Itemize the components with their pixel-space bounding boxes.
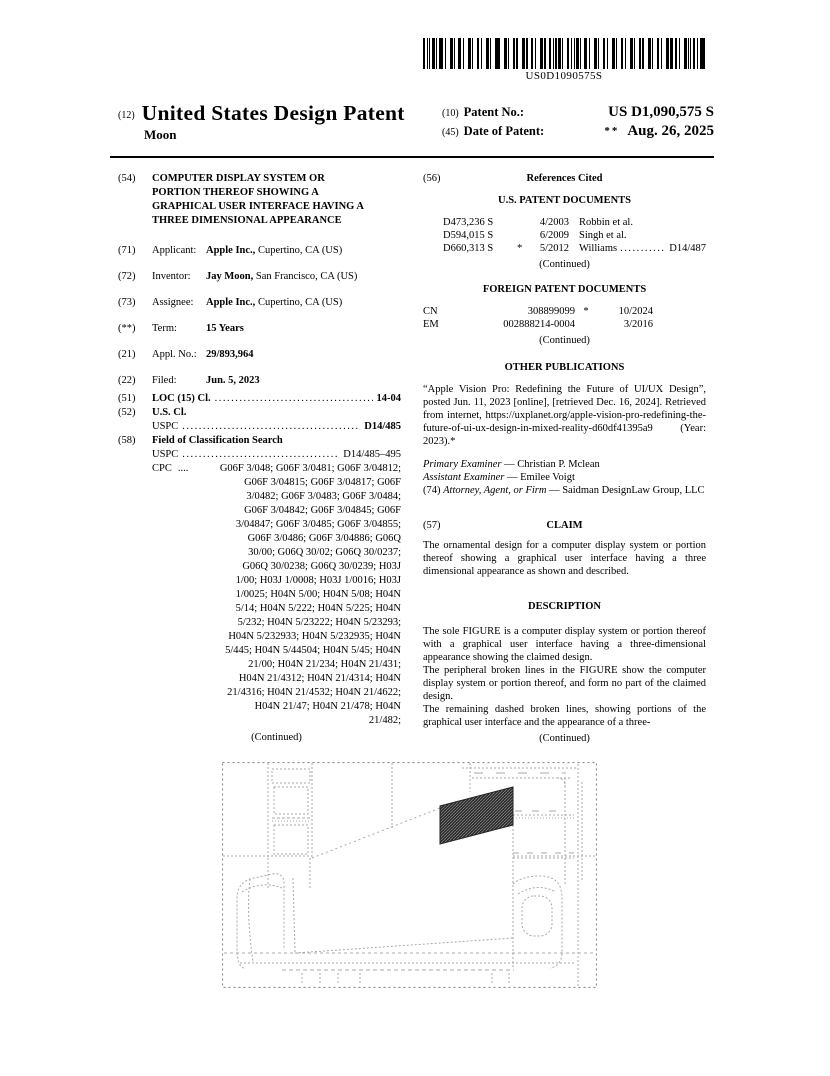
field-label: Appl. No.: — [152, 348, 206, 361]
attorney-line: (74) Attorney, Agent, or Firm — Saidman … — [423, 484, 706, 497]
left-column: (54) COMPUTER DISPLAY SYSTEM OR PORTION … — [118, 172, 401, 745]
cpc-line: 5/232; H04N 5/23222; H04N 5/23293; — [152, 616, 401, 630]
cpc-line: 1/00; H03J 1/0008; H03J 1/0016; H03J — [152, 574, 401, 588]
other-publication-citation: “Apple Vision Pro: Redefining the Future… — [423, 383, 706, 448]
continued-marker: (Continued) — [423, 334, 706, 347]
dot-leader — [630, 229, 703, 242]
cited-inventor: Robbin et al. — [579, 216, 633, 229]
field-number: (51) — [118, 392, 152, 405]
field-number: (22) — [118, 374, 152, 387]
dot-leader: ........................................… — [182, 420, 360, 433]
us-patent-documents-table: D473,236 S 4/2003 Robbin et al. D594,015… — [423, 216, 706, 255]
field-number: (52) — [118, 406, 152, 419]
patent-date: Aug. 26, 2025 — [627, 123, 714, 140]
continued-marker: (Continued) — [152, 731, 401, 745]
dot-leader: ........................................… — [215, 392, 373, 405]
assistant-examiner-name: — Emilee Voigt — [504, 472, 575, 483]
description-paragraph: The remaining dashed broken lines, showi… — [423, 703, 706, 729]
examiner-cited-marker — [575, 318, 597, 331]
assistant-examiner-label: Assistant Examiner — [423, 472, 504, 483]
cpc-line: 21/00; H04N 21/234; H04N 21/431; — [152, 658, 401, 672]
document-title: United States Design Patent — [142, 101, 405, 126]
table-row: D473,236 S 4/2003 Robbin et al. — [443, 216, 706, 229]
barcode-text: US0D1090575S — [423, 70, 705, 82]
header-right: (10) Patent No.: US D1,090,575 S (45) Da… — [442, 101, 714, 143]
dot-leader: ........................................… — [182, 448, 339, 461]
uspc-search-value: D14/485–495 — [343, 448, 401, 461]
field-number: (**) — [118, 322, 152, 335]
inventor-address: San Francisco, CA (US) — [253, 271, 357, 282]
cited-inventor: Singh et al. — [579, 229, 627, 242]
cited-patent-number: D660,313 S — [443, 242, 517, 255]
uspc-line: USPC ...................................… — [118, 420, 401, 433]
cited-date: 4/2003 — [529, 216, 569, 229]
field-52-us-class: (52) U.S. Cl. — [118, 406, 401, 419]
cited-patent-number: D473,236 S — [443, 216, 517, 229]
us-patent-documents-heading: U.S. PATENT DOCUMENTS — [423, 194, 706, 207]
primary-examiner-name: — Christian P. Mclean — [501, 459, 599, 470]
loc-class-value: 14-04 — [377, 392, 402, 405]
other-publications-heading: OTHER PUBLICATIONS — [423, 361, 706, 374]
inventor-surname: Moon — [144, 127, 442, 143]
patent-no-label: Patent No.: — [464, 105, 524, 120]
ceiling-band — [462, 763, 578, 792]
cpc-line: 3/04847; G06F 3/0485; G06F 3/04855; — [152, 518, 401, 532]
sole-figure-drawing — [222, 762, 597, 988]
table-row: EM 002888214-0004 3/2016 — [423, 318, 706, 331]
cpc-line: 30/00; G06Q 30/02; G06Q 30/0237; — [152, 546, 401, 560]
field-label: Inventor: — [152, 270, 206, 283]
cpc-line: 5/445; H04N 5/44504; H04N 5/45; H04N — [152, 644, 401, 658]
cpc-line: G06F 3/04842; G06F 3/04845; G06F — [152, 504, 401, 518]
right-shelf-unit — [513, 778, 574, 968]
patent-header: (12) United States Design Patent Moon (1… — [118, 101, 714, 143]
invention-title: COMPUTER DISPLAY SYSTEM OR PORTION THERE… — [152, 172, 401, 228]
barcode-image — [423, 38, 705, 69]
assignee-name: Apple Inc., — [206, 297, 255, 308]
applicant-value: Apple Inc., Cupertino, CA (US) — [206, 244, 401, 257]
description-heading: DESCRIPTION — [423, 600, 706, 613]
cpc-classification-list: CPC .... G06F 3/048; G06F 3/0481; G06F 3… — [118, 462, 401, 745]
header-divider — [110, 156, 714, 158]
country-code: EM — [423, 318, 463, 331]
field-72-inventor: (72) Inventor: Jay Moon, San Francisco, … — [118, 270, 401, 283]
cpc-line: H04N 21/47; H04N 21/478; H04N — [152, 700, 401, 714]
table-row: CN 308899099 * 10/2024 — [423, 305, 706, 318]
front-page-columns: (54) COMPUTER DISPLAY SYSTEM OR PORTION … — [118, 172, 706, 745]
field-label: Assignee: — [152, 296, 206, 309]
field-number: (74) — [423, 485, 443, 496]
continued-marker: (Continued) — [423, 258, 706, 271]
sole-figure — [222, 762, 597, 993]
application-number: 29/893,964 — [206, 349, 254, 360]
title-line: PORTION THEREOF SHOWING A — [152, 186, 401, 200]
header-left: (12) United States Design Patent Moon — [118, 101, 442, 143]
cited-class: D14/487 — [669, 242, 706, 255]
field-number: (56) — [423, 172, 457, 185]
primary-examiner-label: Primary Examiner — [423, 459, 501, 470]
date-field-code: (45) — [442, 127, 459, 138]
patent-figure — [222, 762, 597, 988]
assignee-value: Apple Inc., Cupertino, CA (US) — [206, 296, 401, 309]
figure-border — [223, 763, 597, 988]
patent-document-page: US0D1090575S (12) United States Design P… — [0, 0, 830, 1076]
cited-inventor: Williams — [579, 242, 617, 255]
barcode: US0D1090575S — [423, 38, 705, 82]
filing-date-value: Jun. 5, 2023 — [206, 374, 401, 387]
sofa — [224, 874, 595, 984]
uspc-label: USPC — [152, 448, 178, 461]
field-71-applicant: (71) Applicant: Apple Inc., Cupertino, C… — [118, 244, 401, 257]
continued-marker: (Continued) — [423, 732, 706, 745]
examiner-cited-marker: * — [517, 242, 529, 255]
cited-date: 10/2024 — [597, 305, 653, 318]
foreign-doc-number: 002888214-0004 — [463, 318, 575, 331]
field-of-search-heading: Field of Classification Search — [152, 434, 283, 447]
table-row: D660,313 S * 5/2012 Williams ...........… — [443, 242, 706, 255]
cpc-line: CPC .... G06F 3/048; G06F 3/0481; G06F 3… — [152, 462, 401, 476]
cpc-line: H04N 5/232933; H04N 5/232935; H04N — [152, 630, 401, 644]
cpc-label: CPC — [152, 462, 172, 476]
foreign-patent-documents-table: CN 308899099 * 10/2024 EM 002888214-0004… — [423, 305, 706, 331]
patent-number: US D1,090,575 S — [608, 104, 714, 121]
inventor-name-text: Jay Moon, — [206, 271, 253, 282]
uspc-search-line: USPC ...................................… — [118, 448, 401, 461]
foreign-doc-number: 308899099 — [463, 305, 575, 318]
claim-heading: (57) CLAIM — [423, 519, 706, 532]
dot-leader: .... — [178, 462, 189, 476]
field-number: (72) — [118, 270, 152, 283]
field-label: Term: — [152, 322, 206, 335]
claim-text: The ornamental design for a computer dis… — [423, 539, 706, 578]
term-value: 15 Years — [206, 322, 401, 335]
title-line: THREE DIMENSIONAL APPEARANCE — [152, 214, 401, 228]
field-number: (73) — [118, 296, 152, 309]
cpc-line: G06Q 30/0238; G06Q 30/0239; H03J — [152, 560, 401, 574]
assignee-address: Cupertino, CA (US) — [255, 297, 342, 308]
field-51-loc-class: (51) LOC (15) Cl. ......................… — [118, 392, 401, 405]
examiner-cited-marker — [517, 216, 529, 229]
attorney-firm-name: — Saidman DesignLaw Group, LLC — [546, 485, 704, 496]
term-years: 15 Years — [206, 323, 244, 334]
field-number: (57) — [423, 519, 457, 532]
field-73-assignee: (73) Assignee: Apple Inc., Cupertino, CA… — [118, 296, 401, 309]
date-of-patent-label: Date of Patent: — [464, 124, 545, 139]
right-column: (56) References Cited U.S. PATENT DOCUME… — [423, 172, 706, 745]
field-21-appl-no: (21) Appl. No.: 29/893,964 — [118, 348, 401, 361]
references-cited-heading: (56) References Cited — [423, 172, 706, 185]
examiner-cited-marker: * — [575, 305, 597, 318]
cited-date: 3/2016 — [597, 318, 653, 331]
uspc-label: USPC — [152, 420, 178, 433]
cpc-line: 21/4316; H04N 21/4532; H04N 21/4622; — [152, 686, 401, 700]
field-number: (58) — [118, 434, 152, 447]
field-number: (21) — [118, 348, 152, 361]
cited-patent-number: D594,015 S — [443, 229, 517, 242]
perspective-line — [312, 808, 440, 858]
field-58-field-of-search: (58) Field of Classification Search — [118, 434, 401, 447]
dot-leader: .................... — [620, 242, 666, 255]
title-line: COMPUTER DISPLAY SYSTEM OR — [152, 172, 401, 186]
description-paragraph: The sole FIGURE is a computer display sy… — [423, 625, 706, 664]
kind-code-label: (12) — [118, 110, 135, 121]
cpc-line: G06F 3/0486; G06F 3/04886; G06Q — [152, 532, 401, 546]
filing-date: Jun. 5, 2023 — [206, 375, 260, 386]
description-paragraph: The peripheral broken lines in the FIGUR… — [423, 664, 706, 703]
section-title: CLAIM — [457, 519, 672, 532]
patent-no-field-code: (10) — [442, 108, 459, 119]
cpc-line: 1/0025; H04N 5/00; H04N 5/08; H04N — [152, 588, 401, 602]
cpc-line: 3/0482; G06F 3/0483; G06F 3/0484; — [152, 490, 401, 504]
field-54-title: (54) COMPUTER DISPLAY SYSTEM OR PORTION … — [118, 172, 401, 228]
dot-leader — [636, 216, 703, 229]
inventor-value: Jay Moon, San Francisco, CA (US) — [206, 270, 401, 283]
cpc-line: 21/482; — [152, 714, 401, 728]
field-term: (**) Term: 15 Years — [118, 322, 401, 335]
examiner-cited-marker — [517, 229, 529, 242]
foreign-patent-documents-heading: FOREIGN PATENT DOCUMENTS — [423, 283, 706, 296]
claimed-design-panel — [440, 787, 513, 844]
section-title: References Cited — [457, 172, 672, 185]
uspc-value: D14/485 — [364, 420, 401, 433]
cpc-line: 5/14; H04N 5/222; H04N 5/225; H04N — [152, 602, 401, 616]
title-line: GRAPHICAL USER INTERFACE HAVING A — [152, 200, 401, 214]
us-class-heading: U.S. Cl. — [152, 406, 186, 419]
cpc-line: G06F 3/04815; G06F 3/04817; G06F — [152, 476, 401, 490]
loc-class-label: LOC (15) Cl. — [152, 392, 211, 405]
left-shelf-unit — [268, 763, 312, 888]
cited-date: 6/2009 — [529, 229, 569, 242]
table-row: D594,015 S 6/2009 Singh et al. — [443, 229, 706, 242]
primary-examiner-line: Primary Examiner — Christian P. Mclean — [423, 458, 706, 471]
field-number: (54) — [118, 172, 152, 228]
term-extension-asterisks: ** — [604, 125, 619, 137]
assistant-examiner-line: Assistant Examiner — Emilee Voigt — [423, 471, 706, 484]
field-label: Filed: — [152, 374, 206, 387]
attorney-label: Attorney, Agent, or Firm — [443, 485, 546, 496]
application-number-value: 29/893,964 — [206, 348, 401, 361]
cited-date: 5/2012 — [529, 242, 569, 255]
cpc-line: H04N 21/4312; H04N 21/4314; H04N — [152, 672, 401, 686]
applicant-address: Cupertino, CA (US) — [255, 245, 342, 256]
field-22-filed: (22) Filed: Jun. 5, 2023 — [118, 374, 401, 387]
examiner-block: Primary Examiner — Christian P. Mclean A… — [423, 458, 706, 497]
field-label: Applicant: — [152, 244, 206, 257]
applicant-name: Apple Inc., — [206, 245, 255, 256]
cpc-codes: G06F 3/048; G06F 3/0481; G06F 3/04812; — [193, 462, 401, 476]
field-number: (71) — [118, 244, 152, 257]
country-code: CN — [423, 305, 463, 318]
